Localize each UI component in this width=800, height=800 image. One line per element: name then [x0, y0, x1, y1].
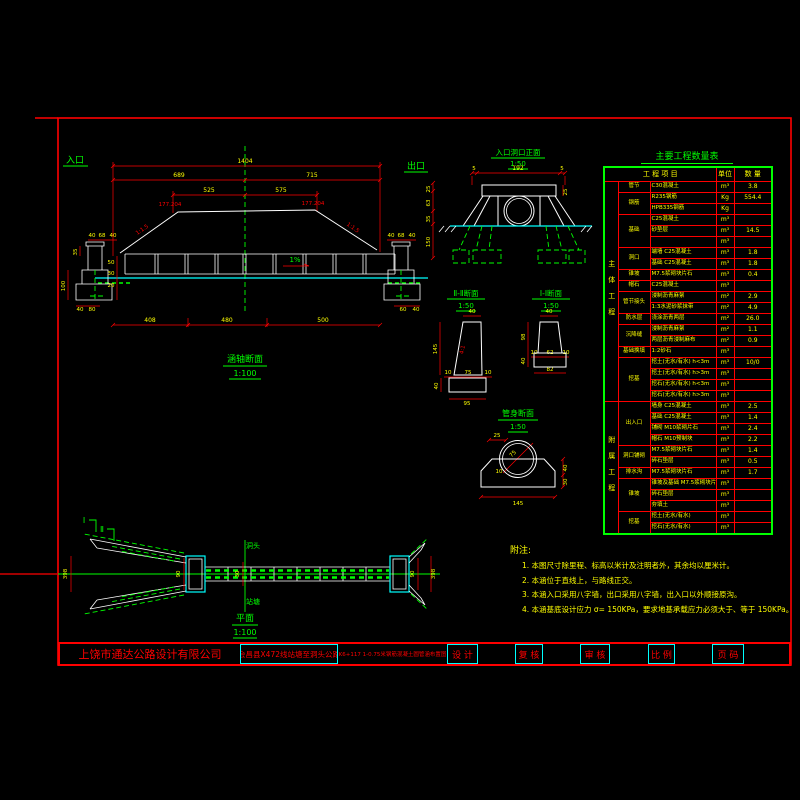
portal-front-view: 入口洞口正面 1:50 5 192 5 25: [439, 148, 592, 263]
qty-cell: 2.4: [734, 424, 772, 435]
section-cut-line-1: [89, 520, 96, 532]
table-row: 挖基挖土(无水/有水) h<3mm³10/0: [604, 358, 772, 369]
qty-cell: [734, 347, 772, 358]
quantities-grid: 工 程 项 目 单位 数 量 主体工程管节C30混凝土m³3.8钢筋R235钢筋…: [603, 166, 773, 535]
table-row: 洞口铺砌M7.5浆砌块片石m³1.4: [604, 446, 772, 457]
item-cell: 端墙 C25混凝土: [650, 248, 716, 259]
qty-cell: 1.4: [734, 446, 772, 457]
item-cell: R235钢筋: [650, 193, 716, 204]
note-line: 3. 本涵入口采用八字墙，出口采用八字墙，出入口以外顺接原沟。: [522, 588, 792, 603]
unit-cell: m³: [716, 347, 734, 358]
qty-cell: [734, 204, 772, 215]
item-cell: C30混凝土: [650, 182, 716, 193]
dim-label: 30: [108, 271, 115, 277]
subgroup-label: 基础换填: [618, 347, 650, 358]
qty-cell: [734, 479, 772, 490]
dim-label: 145: [513, 501, 524, 507]
subgroup-label: 锥坡: [618, 270, 650, 281]
check-label: 审 核: [580, 644, 610, 664]
unit-cell: m³: [716, 435, 734, 446]
inlet-label: 入口: [66, 155, 84, 166]
dim-label: 25: [563, 188, 569, 195]
item-cell: 1:3水泥砂浆抹带: [650, 303, 716, 314]
grade-label: 1%: [289, 256, 300, 264]
table-row: 基础C25混凝土m³: [604, 215, 772, 226]
unit-cell: m³: [716, 358, 734, 369]
unit-cell: m³: [716, 248, 734, 259]
dim-label: 35: [73, 248, 79, 255]
view-title: 管身断面: [502, 408, 534, 418]
item-cell: 挖土(无水/有水) h<3m: [650, 358, 716, 369]
subgroup-label: 排水沟: [618, 468, 650, 479]
qty-cell: [734, 281, 772, 292]
dim-label: 25: [494, 433, 501, 439]
dim-label: 25: [426, 185, 432, 192]
table-row: 挖基挖土(无水/有水)m³: [604, 512, 772, 523]
unit-cell: m²: [716, 303, 734, 314]
dim-label: 63: [426, 199, 432, 206]
foundation-block: [569, 250, 585, 263]
slope-label: 4:1: [459, 345, 467, 355]
table-row: 沉降缝浸制沥青麻絮m²1.1: [604, 325, 772, 336]
item-cell: 碎石垫层: [650, 490, 716, 501]
qty-cell: 26.0: [734, 314, 772, 325]
view-title: 入口洞口正面: [496, 148, 541, 157]
cad-sheet: 入口 出口 1404 689 715 525 575 177.204 177.2…: [0, 0, 800, 800]
qty-cell: 1.7: [734, 468, 772, 479]
qty-cell: 1.4: [734, 413, 772, 424]
table-row: 洞口端墙 C25混凝土m³1.8: [604, 248, 772, 259]
item-cell: 浸制沥青麻絮: [650, 325, 716, 336]
subgroup-label: 帽石: [618, 281, 650, 292]
scale-label: 比 例: [648, 644, 675, 664]
qty-cell: [734, 512, 772, 523]
unit-cell: m³: [716, 380, 734, 391]
dim-label: 10: [496, 469, 503, 475]
view-scale: 1:100: [233, 369, 256, 378]
qty-cell: 0.9: [734, 336, 772, 347]
project-name: 会昌县X472线站塘至洞头公路: [240, 644, 338, 664]
dim-label: 40: [89, 233, 96, 239]
qty-cell: [734, 215, 772, 226]
dim-label: 50: [108, 260, 115, 266]
pipe-barrel: [125, 254, 395, 274]
subgroup-label: 洞口: [618, 248, 650, 270]
design-value: [478, 644, 515, 664]
dim-lines-top: [113, 162, 380, 256]
dim-label: 480: [221, 317, 233, 324]
note-line: 4. 本涵基底设计应力 σ= 150KPa，要求地基承载应力必须大于、等于 15…: [522, 603, 792, 618]
foundation-block: [453, 250, 469, 263]
section-2-view: Ⅱ-Ⅱ断面 1:50 40 145 10 75 10 40 95 4:1: [433, 288, 492, 407]
unit-cell: m³: [716, 259, 734, 270]
table-row: 主体工程管节C30混凝土m³3.8: [604, 182, 772, 193]
item-cell: [650, 237, 716, 248]
unit-cell: m²: [716, 325, 734, 336]
table-row: 锥坡锥坡及基础 M7.5浆砌块片石m³: [604, 479, 772, 490]
dim-label: 525: [203, 187, 215, 194]
item-cell: C25混凝土: [650, 281, 716, 292]
item-cell: 挖石(无水/有水): [650, 523, 716, 535]
unit-cell: m²: [716, 314, 734, 325]
view-title: 涵轴断面: [227, 353, 263, 365]
dim-label: 68: [99, 233, 106, 239]
unit-cell: m³: [716, 270, 734, 281]
footing: [449, 378, 486, 392]
dim-label: 5: [560, 166, 564, 172]
item-cell: 浸制沥青麻絮: [650, 292, 716, 303]
portal-outline: [384, 242, 420, 300]
qty-cell: 4.9: [734, 303, 772, 314]
qty-cell: 2.5: [734, 402, 772, 413]
qty-cell: 554.4: [734, 193, 772, 204]
unit-cell: m³: [716, 281, 734, 292]
qty-cell: 14.5: [734, 226, 772, 237]
qty-cell: [734, 369, 772, 380]
unit-cell: m³: [716, 424, 734, 435]
item-cell: 碎石垫层: [650, 457, 716, 468]
dim-label: 75: [509, 449, 519, 459]
unit-cell: m³: [716, 413, 734, 424]
qty-cell: 0.4: [734, 270, 772, 281]
slope-label: 1:1.5: [135, 223, 150, 236]
dim-label: 500: [317, 317, 329, 324]
dim-lines: [470, 171, 567, 196]
unit-cell: m³: [716, 468, 734, 479]
unit-cell: m³: [716, 446, 734, 457]
dim-label: 35: [426, 215, 432, 222]
pipe-opening-outer: [504, 196, 534, 226]
dim-label: 40: [521, 357, 527, 364]
subgroup-label: 挖基: [618, 512, 650, 535]
elevation-label: 177.204: [302, 201, 325, 207]
unit-cell: Kg: [716, 204, 734, 215]
unit-cell: Kg: [716, 193, 734, 204]
table-row: 帽石C25混凝土m³: [604, 281, 772, 292]
dim-label: 90: [176, 570, 182, 577]
dim-label: 5: [472, 166, 476, 172]
table-row: 附属工程出入口墙身 C25混凝土m³2.5: [604, 402, 772, 413]
qty-cell: 2.9: [734, 292, 772, 303]
item-cell: M7.5浆砌块片石: [650, 270, 716, 281]
review-value: [543, 644, 580, 664]
dim-label: 40: [546, 309, 553, 315]
qty-cell: [734, 490, 772, 501]
dim-label: 95: [464, 401, 471, 407]
wall-outline: [454, 322, 482, 375]
dim-label: 100: [61, 280, 67, 291]
dim-label: 150: [426, 236, 432, 247]
page-value: [744, 644, 789, 664]
dim-label: 30: [235, 570, 241, 577]
company-name: 上饶市通达公路设计有限公司: [60, 644, 240, 664]
direction-label-bottom: 站塘: [246, 597, 260, 606]
subgroup-label: 管节接头: [618, 292, 650, 314]
dim-label: 575: [275, 187, 287, 194]
dim-label: 40: [409, 233, 416, 239]
unit-cell: m³: [716, 215, 734, 226]
dim-label: 60: [400, 307, 407, 313]
dim-label: 145: [433, 343, 439, 354]
table-row: 防水层浇涂沥青两层m²26.0: [604, 314, 772, 325]
item-cell: 墙身 C25混凝土: [650, 402, 716, 413]
item-cell: 两层沥青浸制麻布: [650, 336, 716, 347]
dim-label: 715: [306, 172, 318, 179]
dim-label: 30: [563, 478, 569, 485]
subgroup-label: 出入口: [618, 402, 650, 446]
subgroup-label: 沉降缝: [618, 325, 650, 347]
view-title: Ⅰ-Ⅰ断面: [540, 288, 563, 298]
section-marker-2: Ⅱ: [100, 525, 104, 534]
item-cell: 基础 C25混凝土: [650, 259, 716, 270]
plan-view: 洞头 站塘 30 398 90 90 398 Ⅰ Ⅱ 平面 1:100: [58, 516, 440, 638]
table-row: 锥坡M7.5浆砌块片石m³0.4: [604, 270, 772, 281]
wing-walls: [463, 196, 575, 226]
item-cell: 基础 C25混凝土: [650, 413, 716, 424]
view-title: 平面: [236, 613, 254, 624]
notes-title: 附注:: [510, 543, 792, 556]
unit-cell: m³: [716, 182, 734, 193]
title-block: 上饶市通达公路设计有限公司 会昌县X472线站塘至洞头公路 K6+117 1-0…: [58, 642, 791, 666]
dim-label: 398: [63, 568, 69, 579]
unit-cell: m³: [716, 479, 734, 490]
dim-label: 10: [445, 370, 452, 376]
dim-label: 40: [110, 233, 117, 239]
qty-cell: [734, 501, 772, 512]
quantities-table: 主要工程数量表 工 程 项 目 单位 数 量 主体工程管节C30混凝土m³3.8…: [603, 149, 771, 535]
item-cell: 帽石 M10预制块: [650, 435, 716, 446]
item-cell: 锥坡及基础 M7.5浆砌块片石: [650, 479, 716, 490]
base-outline: [481, 459, 555, 487]
elevation-label: 177.204: [159, 202, 182, 208]
item-cell: M7.5浆砌块片石: [650, 468, 716, 479]
item-cell: 1:2砂石: [650, 347, 716, 358]
view-scale: 1:50: [510, 423, 526, 431]
item-cell: 挖石(无水/有水) h>3m: [650, 391, 716, 402]
dim-label: 40: [469, 309, 476, 315]
dim-label: 192: [512, 165, 524, 172]
review-label: 复 核: [515, 644, 543, 664]
dim-label: 10: [485, 370, 492, 376]
pipe-opening-inner: [507, 199, 532, 224]
inlet-portal: 40 68 40 35 100 50 30 20 40 80: [61, 233, 117, 313]
longitudinal-section: 入口 出口 1404 689 715 525 575 177.204 177.2…: [61, 146, 435, 379]
group-label: 附属工程: [604, 402, 618, 535]
table-row: 钢筋R235钢筋Kg554.4: [604, 193, 772, 204]
portal-foundation-dash: [90, 270, 104, 300]
item-cell: 夯填土: [650, 501, 716, 512]
unit-cell: m³: [716, 501, 734, 512]
notes: 附注: 1. 本图尺寸除里程、标高以米计及注明者外，其余均以厘米计。 2. 本涵…: [500, 543, 792, 617]
scale-value: [675, 644, 712, 664]
dim-label: 80: [89, 307, 96, 313]
subgroup-label: 锥坡: [618, 479, 650, 512]
col-header-item: 工 程 项 目: [604, 167, 716, 182]
slope-label: 1:1.5: [345, 222, 360, 235]
qty-cell: [734, 237, 772, 248]
item-cell: 砂垫层: [650, 226, 716, 237]
drawing-title: K6+117 1-0.75米钢筋混凝土圆管涵布置图: [338, 644, 447, 664]
unit-cell: m³: [716, 237, 734, 248]
table-row: 基础换填1:2砂石m³: [604, 347, 772, 358]
unit-cell: m²: [716, 292, 734, 303]
qty-cell: 1.1: [734, 325, 772, 336]
pipe-body-section: 管身断面 1:50 25 75 10 40 30 145: [479, 408, 569, 507]
dim-label: 40: [434, 382, 440, 389]
item-cell: M7.5浆砌块片石: [650, 446, 716, 457]
dim-label: 40: [77, 307, 84, 313]
qty-cell: 1.8: [734, 248, 772, 259]
qty-cell: [734, 391, 772, 402]
direction-label-top: 洞头: [246, 541, 260, 550]
outlet-label: 出口: [407, 160, 425, 172]
item-cell: HPB335钢筋: [650, 204, 716, 215]
dim-ticks: [111, 164, 382, 197]
col-header-unit: 单位: [716, 167, 734, 182]
unit-cell: m³: [716, 391, 734, 402]
section-marker-1: Ⅰ: [83, 516, 85, 525]
view-scale: 1:100: [233, 628, 256, 637]
section-1-view: Ⅰ-Ⅰ断面 1:50 40 98 40 10 62 10 82: [521, 288, 570, 373]
foundation-dash-lines: [459, 226, 579, 250]
table-row: 管节接头浸制沥青麻絮m²2.9: [604, 292, 772, 303]
unit-cell: m³: [716, 369, 734, 380]
subgroup-label: 洞口铺砌: [618, 446, 650, 468]
note-line: 1. 本图尺寸除里程、标高以米计及注明者外，其余均以厘米计。: [522, 559, 792, 574]
embankment-outline: [120, 210, 377, 253]
group-label: 主体工程: [604, 182, 618, 402]
dim-label: 408: [144, 317, 156, 324]
dim-label: 40: [563, 464, 569, 471]
unit-cell: m³: [716, 512, 734, 523]
unit-cell: m³: [716, 226, 734, 237]
dim-label: 98: [521, 333, 527, 340]
subgroup-label: 钢筋: [618, 193, 650, 215]
check-value: [610, 644, 648, 664]
dim-label: 40: [388, 233, 395, 239]
view-title: Ⅱ-Ⅱ断面: [453, 288, 479, 298]
unit-cell: m³: [716, 457, 734, 468]
foundation-block: [538, 250, 566, 263]
qty-cell: 1.8: [734, 259, 772, 270]
dim-label: 20: [108, 283, 115, 289]
dim-label: 689: [173, 172, 185, 179]
item-cell: 挖土(无水/有水) h>3m: [650, 369, 716, 380]
foundation-block: [473, 250, 501, 263]
unit-cell: m²: [716, 336, 734, 347]
dim-lines: [440, 316, 492, 399]
item-cell: 挖石(无水/有水) h<3m: [650, 380, 716, 391]
subgroup-label: 基础: [618, 215, 650, 248]
grade-arrow: [283, 264, 309, 266]
dim-label: 82: [547, 367, 554, 373]
qty-cell: 10/0: [734, 358, 772, 369]
item-cell: 挖土(无水/有水): [650, 512, 716, 523]
item-cell: C25混凝土: [650, 215, 716, 226]
dim-label: 40: [413, 307, 420, 313]
dim-label: 398: [431, 568, 437, 579]
dim-label: 90: [410, 570, 416, 577]
table-header-row: 工 程 项 目 单位 数 量: [604, 167, 772, 182]
note-line: 2. 本涵位于直线上，与路线正交。: [522, 574, 792, 589]
subgroup-label: 挖基: [618, 358, 650, 402]
qty-cell: 3.8: [734, 182, 772, 193]
item-cell: 浇涂沥青两层: [650, 314, 716, 325]
dim-label: 68: [398, 233, 405, 239]
subgroup-label: 防水层: [618, 314, 650, 325]
portal-foundation-dash: [396, 270, 410, 300]
dim-label: 1404: [237, 158, 252, 165]
table-row: 排水沟M7.5浆砌块片石m³1.7: [604, 468, 772, 479]
headwall-cap: [482, 185, 556, 196]
wall-outline: [538, 322, 562, 353]
qty-cell: 0.5: [734, 457, 772, 468]
table-title: 主要工程数量表: [641, 149, 733, 164]
col-header-qty: 数 量: [734, 167, 772, 182]
item-cell: 铺砌 M10浆砌片石: [650, 424, 716, 435]
subgroup-label: 管节: [618, 182, 650, 193]
qty-cell: [734, 380, 772, 391]
page-label: 页 码: [712, 644, 744, 664]
outlet-portal: 40 68 40 60 40 25 63 35 150: [384, 181, 435, 313]
design-label: 设 计: [447, 644, 478, 664]
unit-cell: m³: [716, 523, 734, 535]
qty-cell: 2.2: [734, 435, 772, 446]
unit-cell: m³: [716, 402, 734, 413]
unit-cell: m³: [716, 490, 734, 501]
qty-cell: [734, 523, 772, 535]
